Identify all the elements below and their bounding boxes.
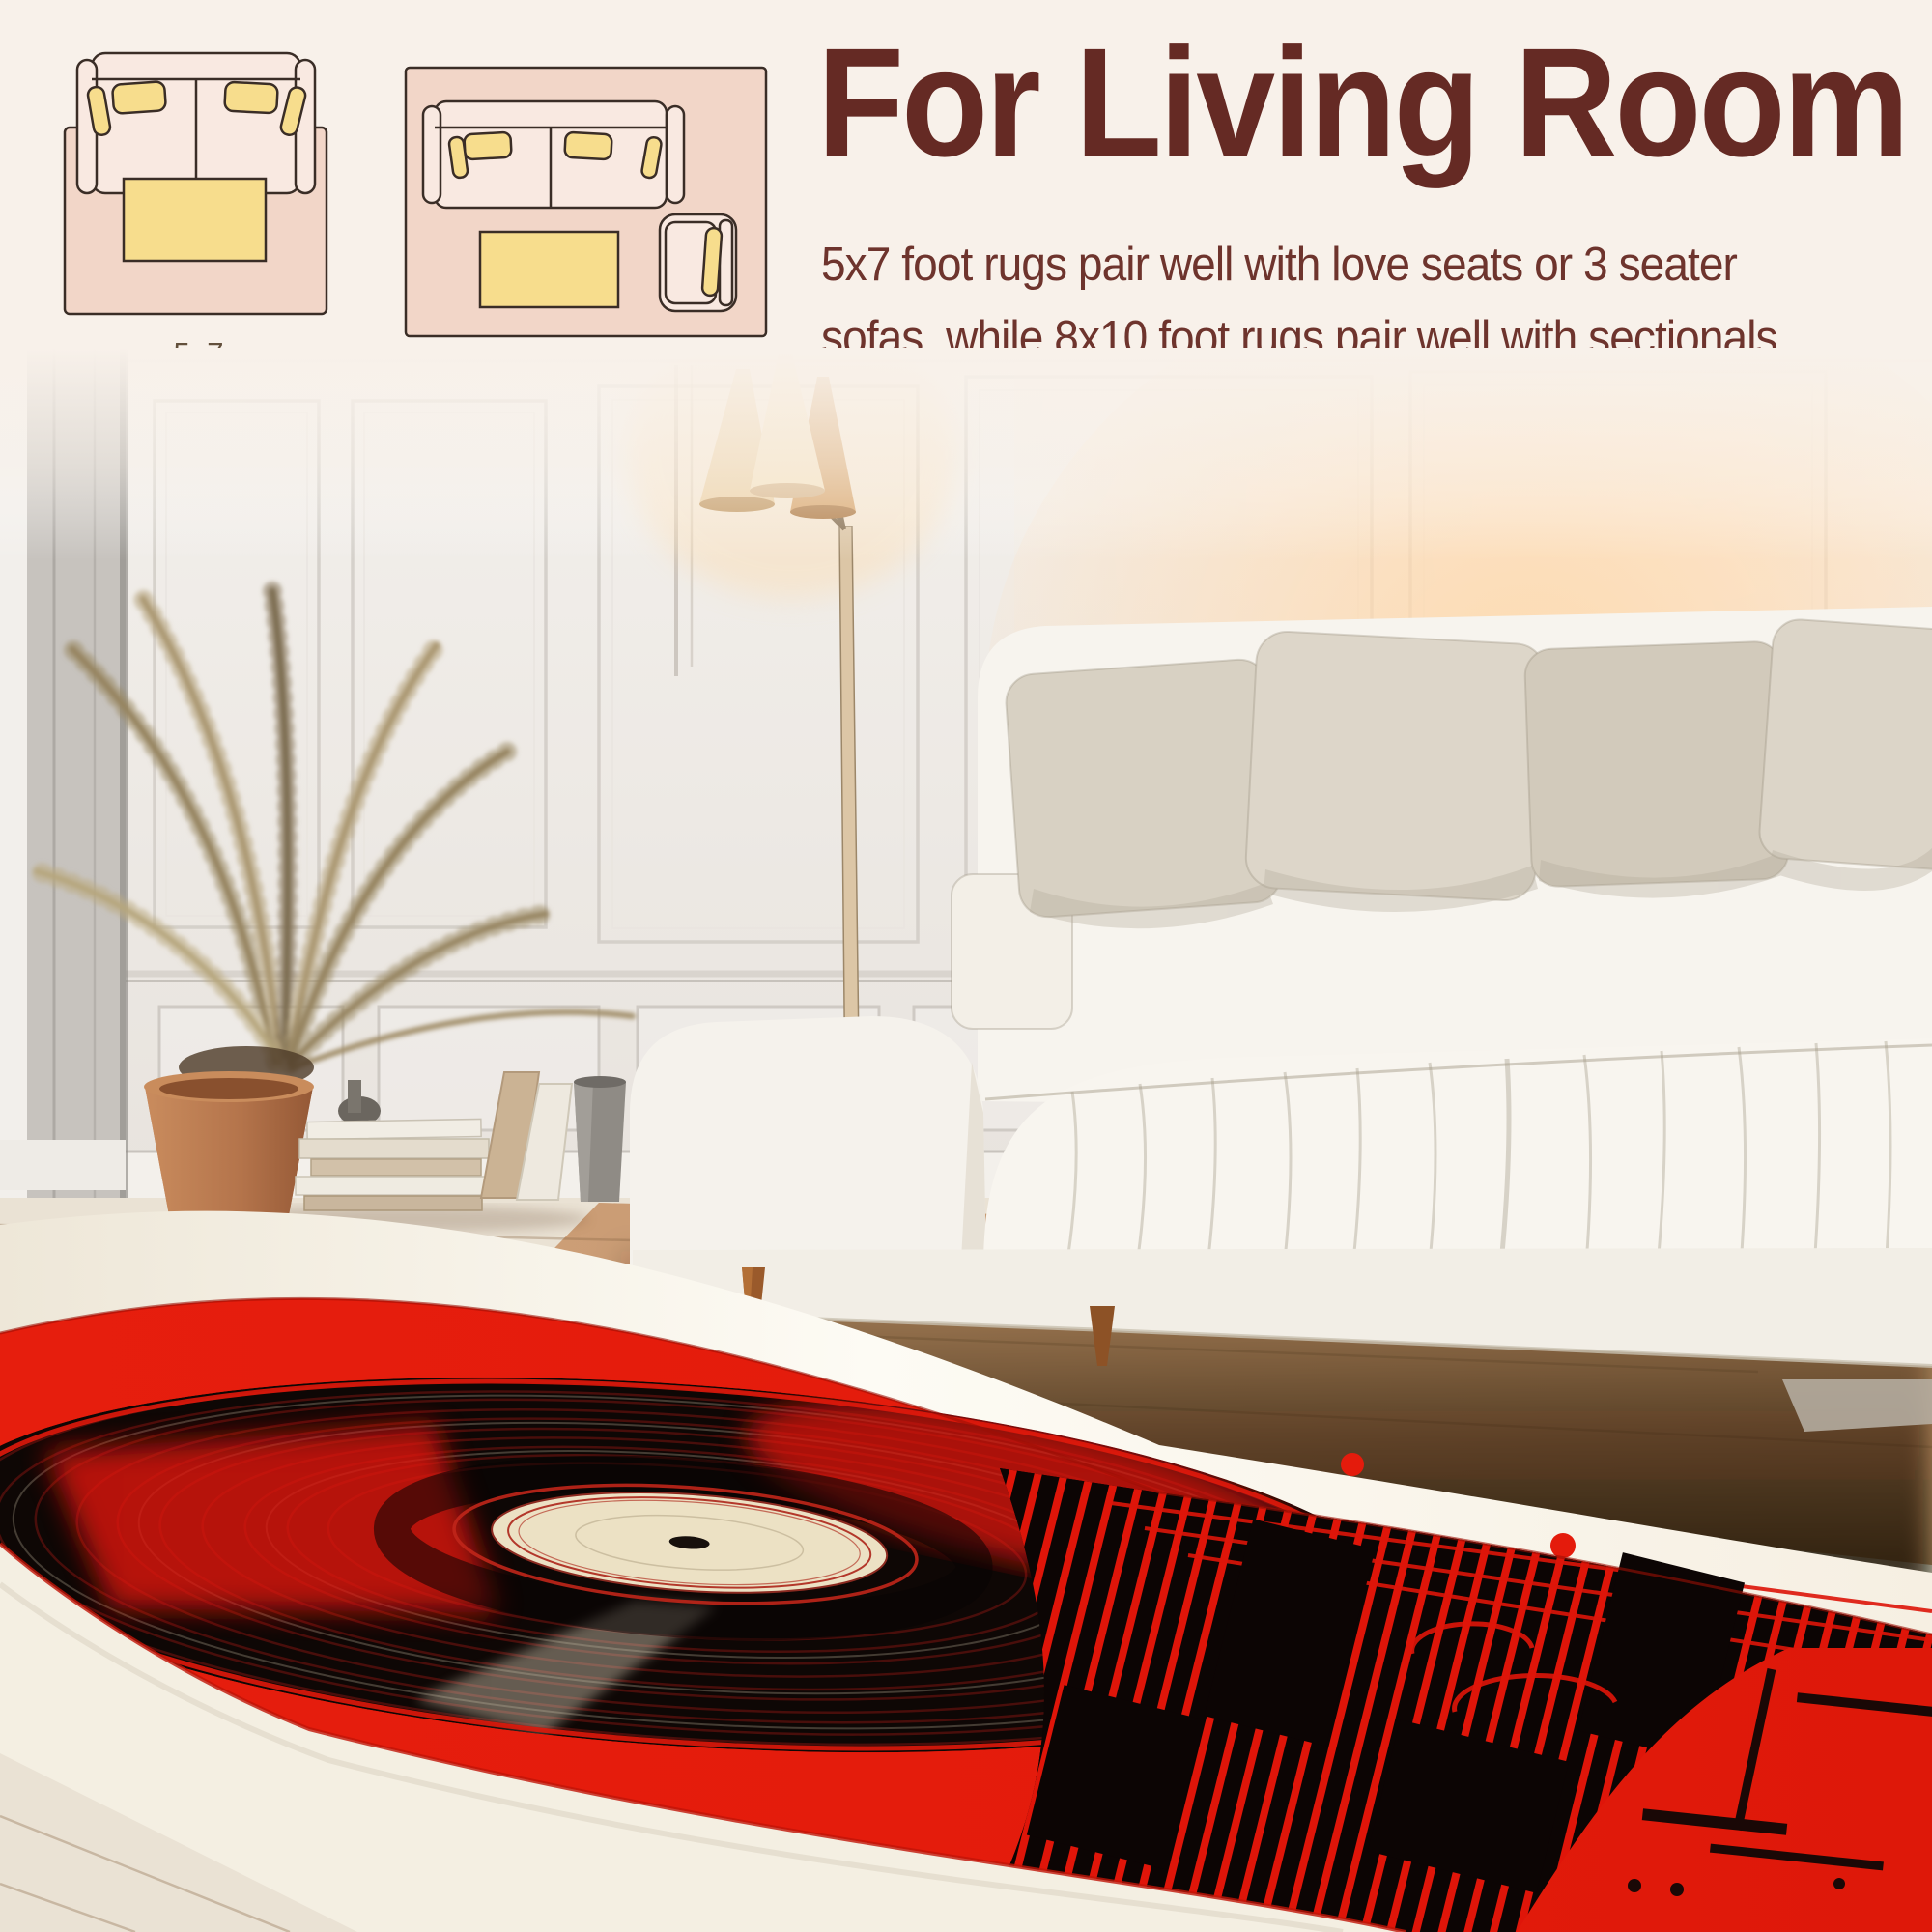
pattern-dot [1341,1453,1364,1476]
rug-product-infographic: 5x7 8x10 For [0,0,1932,1932]
sofa-top-view-icon [423,101,684,208]
diagram-5x7-graphic [35,29,334,319]
rug-size-diagram-8x10 [401,58,773,353]
floor-sliver [1782,1379,1932,1432]
coffee-table-icon [124,179,266,261]
photo-top-fade [0,348,1932,560]
rug-size-diagram-5x7 [35,29,334,324]
living-room-photo [0,348,1932,1932]
vase [574,1076,626,1202]
pattern-dot [1550,1533,1576,1558]
living-room-scene [0,348,1932,1932]
coffee-table-icon [480,232,618,307]
sofa-top-view-icon [77,53,315,193]
page-title: For Living Room [817,21,1907,184]
description-line-1: 5x7 foot rugs pair well with love seats … [821,239,1737,291]
diagram-8x10-graphic [401,58,773,348]
armchair-top-view-icon [660,214,736,311]
